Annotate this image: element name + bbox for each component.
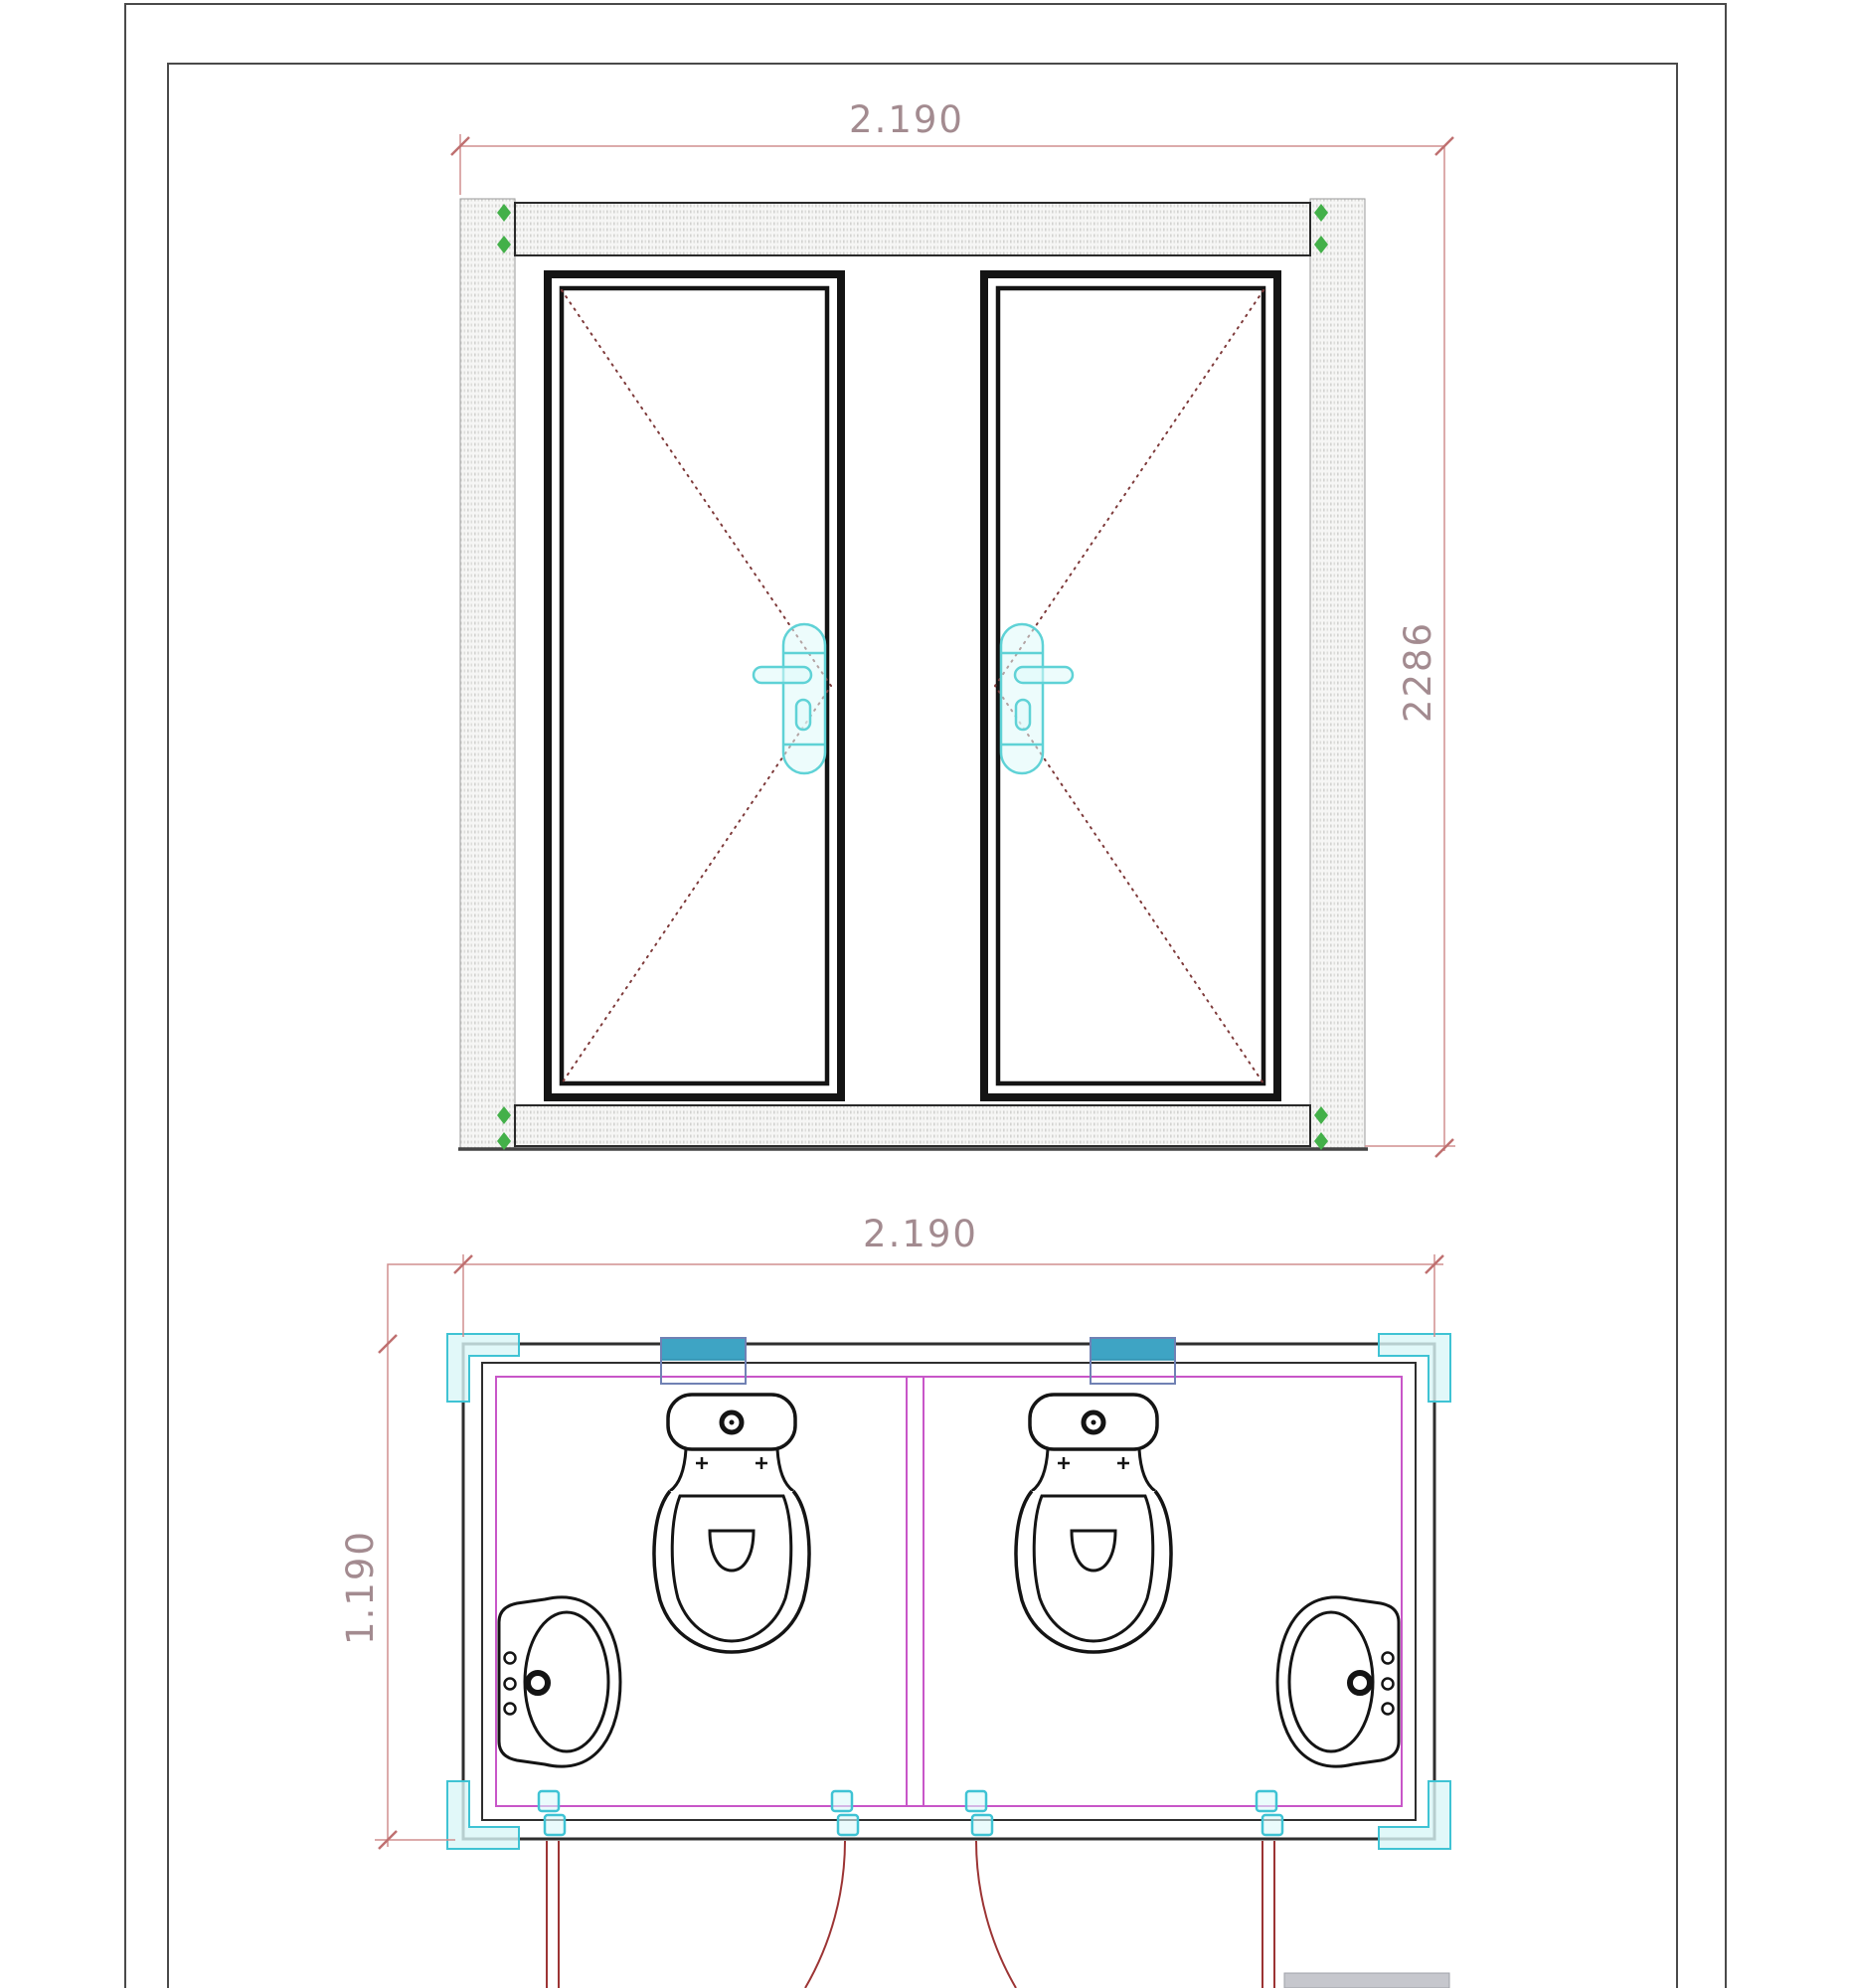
door-swing-arc-right <box>976 1841 1016 1988</box>
toilet-symbol-right <box>1016 1395 1171 1652</box>
door-swing-arc-left <box>805 1841 845 1988</box>
washbasin-symbol-right <box>1277 1597 1399 1766</box>
door-leaf-right <box>984 274 1277 1097</box>
plan-view <box>375 1254 1450 1988</box>
plan-wall-outer <box>463 1344 1434 1839</box>
elevation-height-dimension: 2286 <box>1399 573 1442 771</box>
toilet-symbol-left <box>654 1395 809 1652</box>
door-leaf-left <box>548 274 841 1097</box>
frame-rail-bottom <box>515 1105 1310 1146</box>
elevation-view <box>451 134 1455 1157</box>
elevation-width-dimension: 2.190 <box>807 100 1006 140</box>
blueprint-page: 2.190 2286 2.190 1.190 <box>0 0 1849 1988</box>
cad-linework <box>0 0 1849 1988</box>
plan-width-dimension: 2.190 <box>821 1215 1020 1254</box>
plan-depth-dimension: 1.190 <box>341 1488 385 1687</box>
frame-rail-top <box>515 203 1310 255</box>
door-swings <box>547 1841 1274 1988</box>
frame-stile-right <box>1310 199 1365 1148</box>
cutoff-gray-object <box>1284 1973 1449 1988</box>
washbasin-symbol-left <box>499 1597 620 1766</box>
frame-stile-left <box>460 199 515 1148</box>
